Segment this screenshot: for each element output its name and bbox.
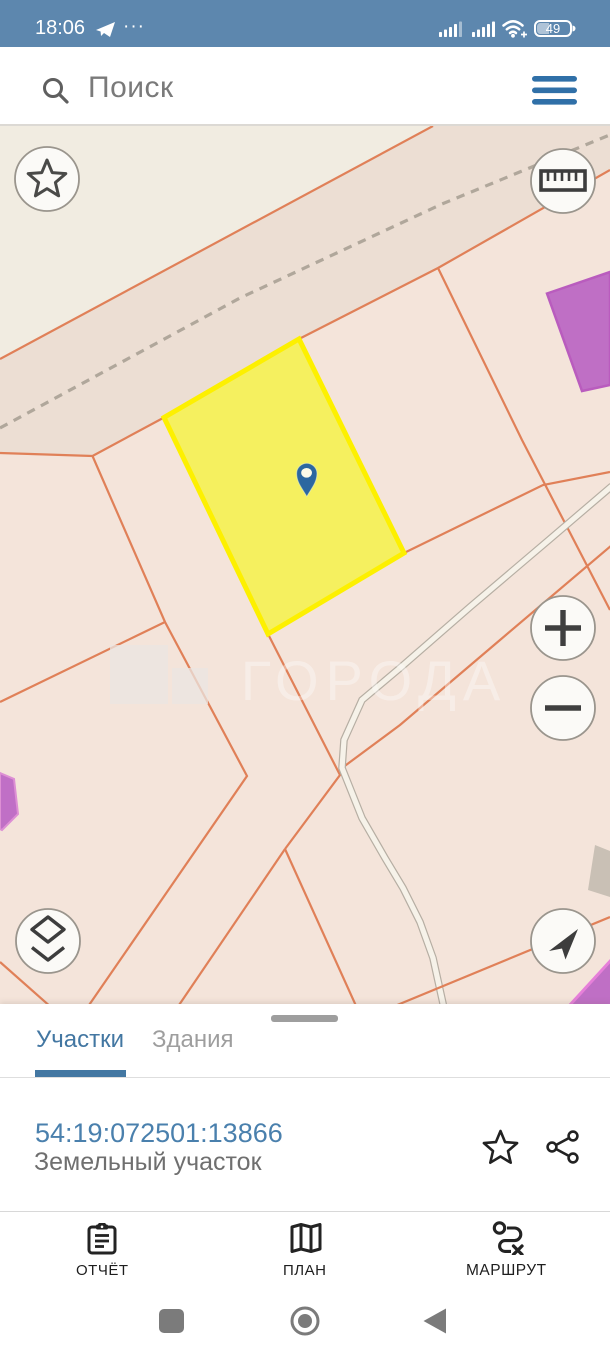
svg-text:49: 49 bbox=[546, 21, 560, 36]
svg-text:ГОРОДА: ГОРОДА bbox=[241, 649, 507, 712]
